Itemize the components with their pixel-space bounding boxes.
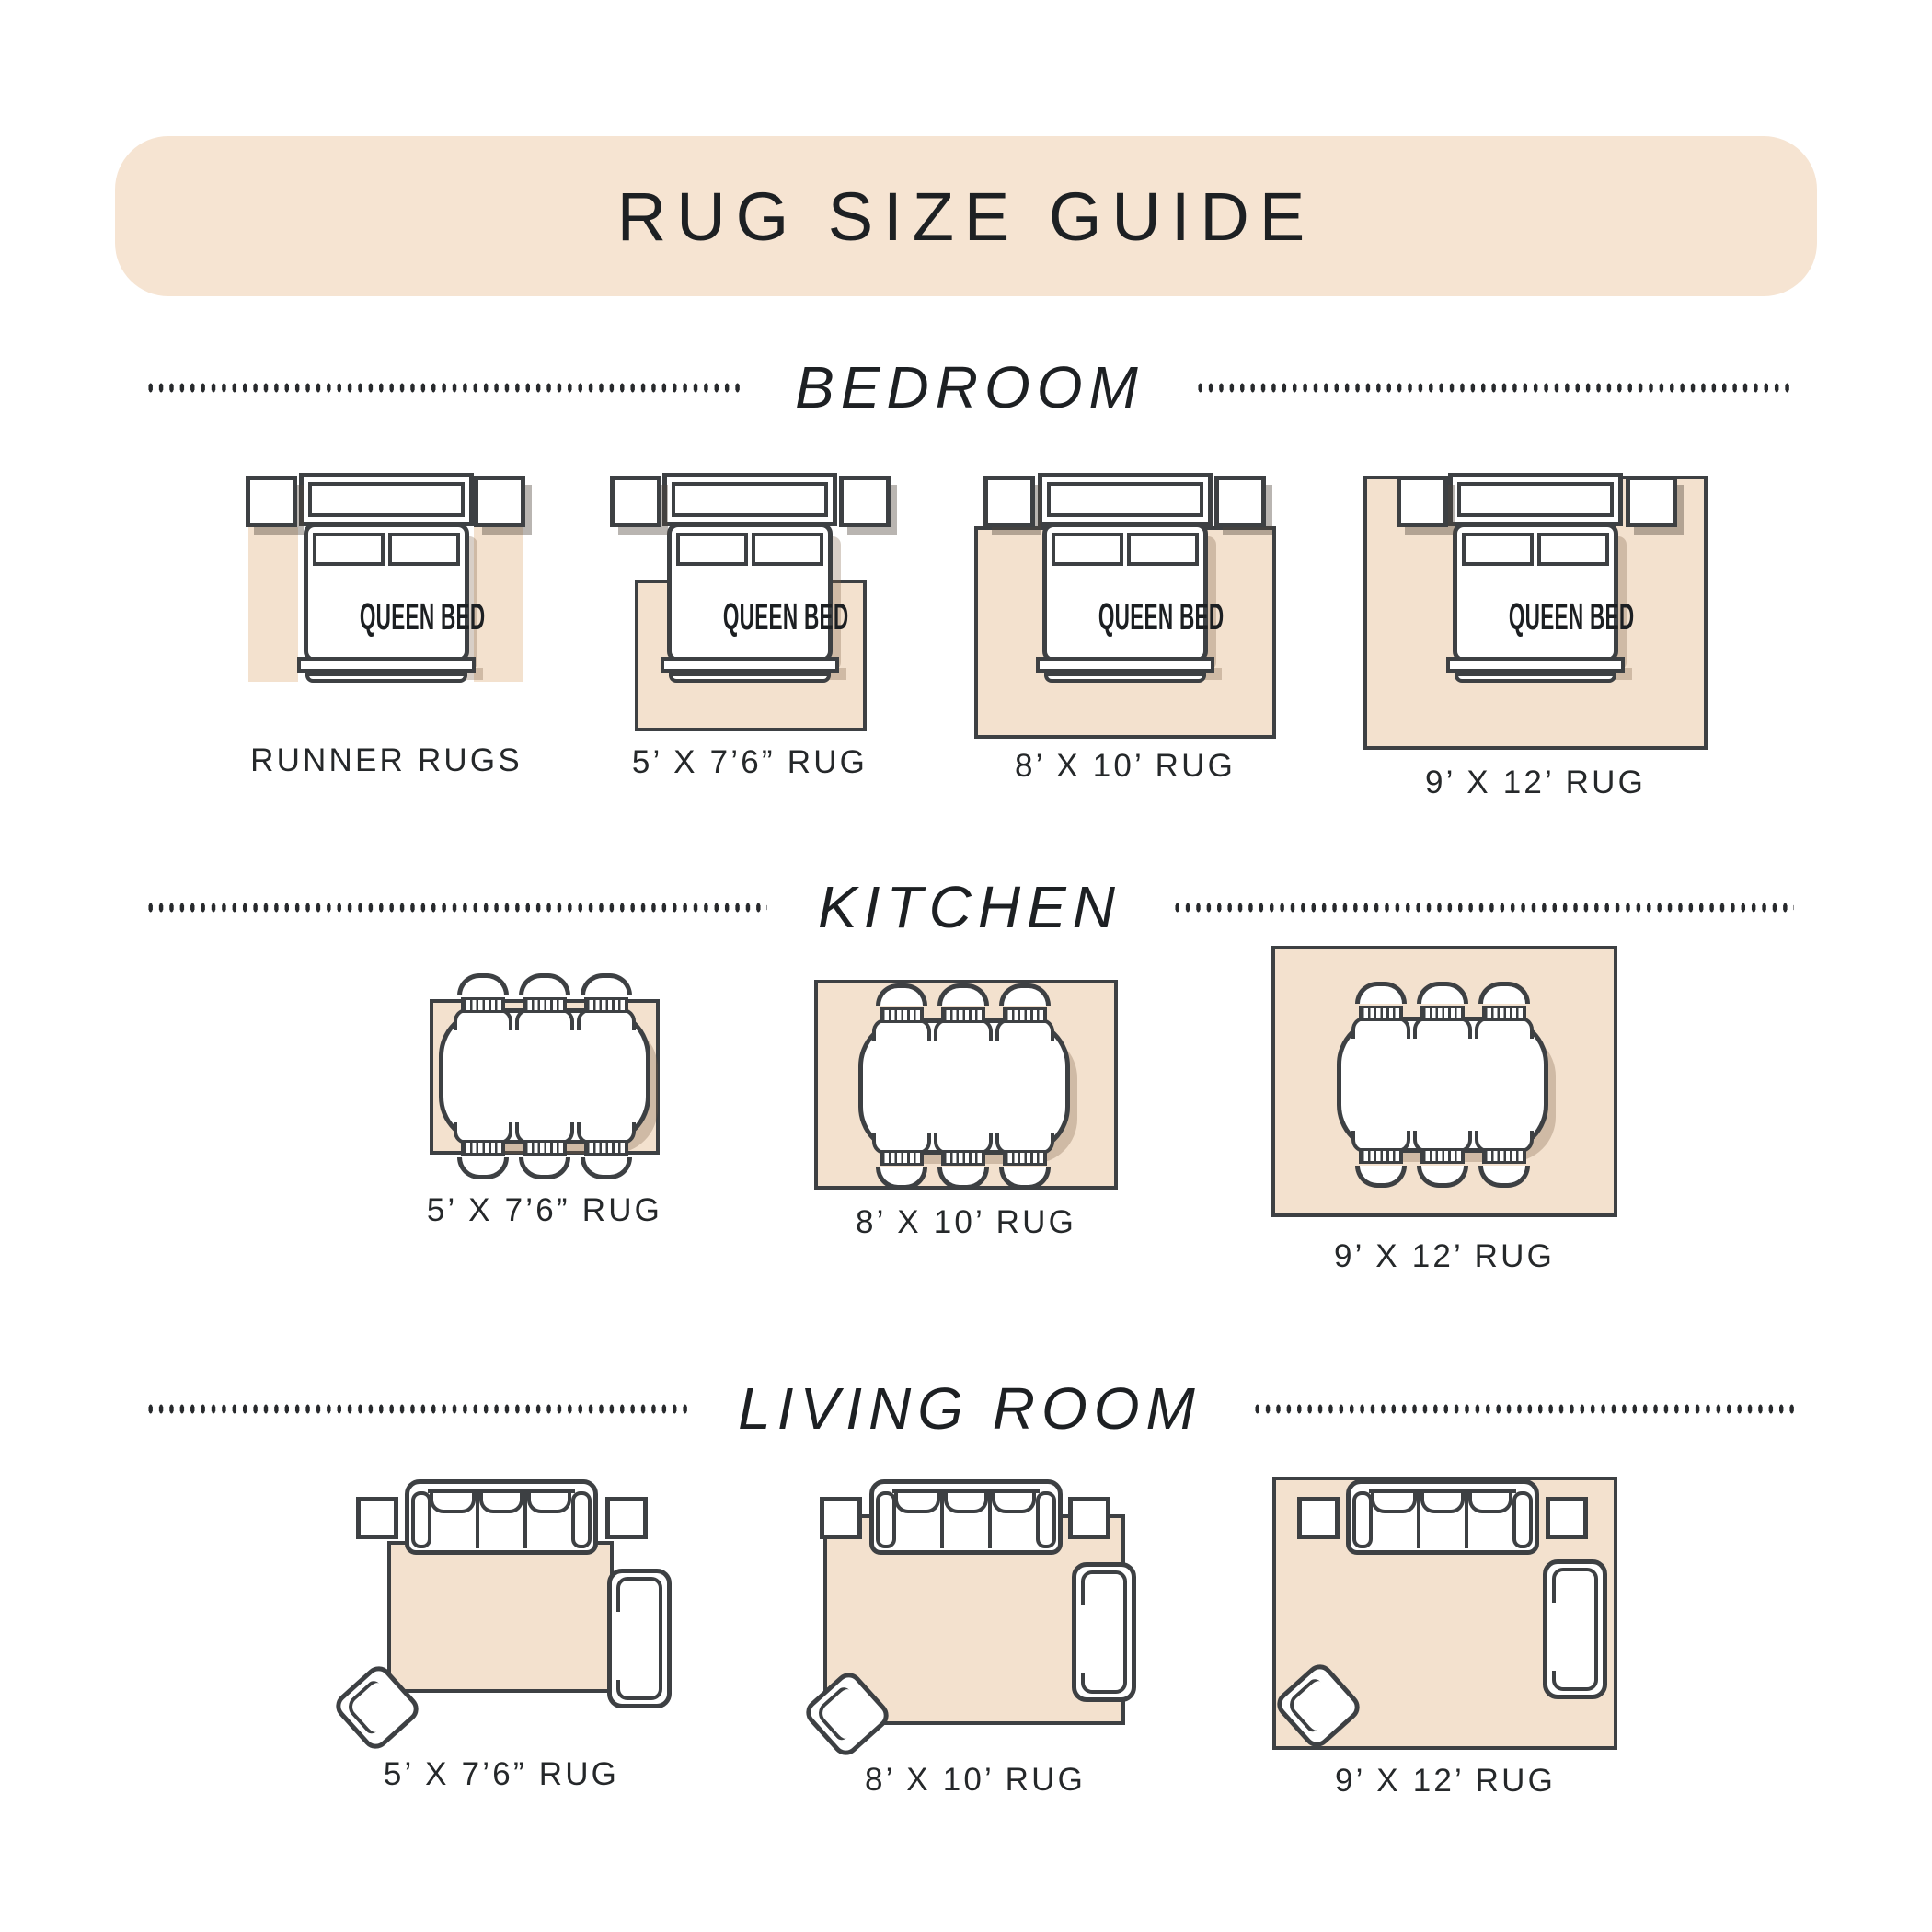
diagram-bedroom-runner-rugs: QUEEN BED RUNNER RUGS: [202, 460, 570, 828]
bed-headboard-inner: [308, 482, 465, 517]
chair-back: [457, 1157, 509, 1179]
chair-seat: [880, 1150, 924, 1166]
dotted-divider: [1252, 1404, 1794, 1414]
sofa: [1346, 1479, 1539, 1555]
sofa: [869, 1479, 1063, 1555]
chair: [454, 1122, 512, 1179]
chair-seat: [941, 1150, 985, 1166]
chair-back: [1478, 1166, 1530, 1188]
sofa-back-cushion: [1371, 1489, 1417, 1513]
chair-back: [937, 1167, 989, 1190]
chair-seat: [941, 1007, 985, 1023]
armchair-cushion: [616, 1577, 662, 1700]
pillow: [1052, 533, 1123, 566]
chair-back: [1417, 1166, 1468, 1188]
side-table: [1068, 1497, 1110, 1539]
section-heading: BEDROOM: [795, 353, 1144, 421]
sofa-cushion-divider: [523, 1489, 527, 1548]
bed-headboard-inner: [672, 482, 828, 517]
chair-seat: [1482, 1148, 1526, 1164]
side-table: [1546, 1497, 1588, 1539]
pillow: [1537, 533, 1609, 566]
runner-rug: [248, 527, 298, 682]
diagram-living-room-9x12: 9’ X 12’ RUG: [1238, 1467, 1652, 1835]
bed-footboard: [305, 673, 467, 683]
accent-chair-back: [1284, 1676, 1343, 1735]
nightstand: [1397, 476, 1448, 527]
rug-size-guide-infographic: RUG SIZE GUIDE BEDROOM QUEEN BED RUNNER …: [0, 0, 1932, 1932]
bed-label: QUEEN BED: [672, 595, 828, 638]
side-table: [1297, 1497, 1340, 1539]
dotted-divider: [1195, 383, 1794, 393]
chair: [934, 983, 993, 1041]
chair: [515, 1122, 574, 1179]
bed-headboard-inner: [1457, 482, 1614, 517]
pillow: [1127, 533, 1199, 566]
dotted-divider: [1172, 903, 1794, 913]
dotted-divider: [145, 1404, 687, 1414]
armchair: [607, 1569, 672, 1708]
accent-chair-back: [343, 1678, 402, 1737]
dotted-divider: [145, 903, 767, 913]
sofa-cushion-divider: [988, 1489, 992, 1548]
nightstand: [1626, 476, 1677, 527]
bed-headboard-inner: [1047, 482, 1203, 517]
armchair-cushion: [1552, 1568, 1598, 1691]
armchair-opening: [1551, 1603, 1558, 1671]
chair-back: [1355, 1166, 1407, 1188]
diagram-label: 5’ X 7’6” RUG: [361, 1192, 729, 1229]
sofa-cushion-divider: [1417, 1489, 1420, 1548]
diagram-label: 8’ X 10’ RUG: [768, 1762, 1182, 1799]
chair: [1413, 982, 1472, 1039]
pillow: [313, 533, 385, 566]
sofa-arm: [876, 1491, 896, 1548]
chair-back: [876, 983, 927, 1006]
diagram-label: 5’ X 7’6” RUG: [566, 744, 934, 781]
chair-seat: [584, 1140, 628, 1156]
page-title: RUG SIZE GUIDE: [617, 178, 1315, 256]
chair-back: [1478, 982, 1530, 1004]
chair: [995, 1133, 1054, 1190]
pillow: [752, 533, 823, 566]
sofa-back-cushion: [894, 1489, 940, 1513]
title-banner: RUG SIZE GUIDE: [115, 136, 1817, 296]
bed-headboard: [299, 473, 474, 526]
bed-label: QUEEN BED: [1047, 595, 1203, 638]
diagram-living-room-5x76: 5’ X 7’6” RUG: [294, 1467, 708, 1835]
sofa-arm: [571, 1491, 592, 1548]
queen-bed: QUEEN BED: [304, 523, 469, 662]
nightstand: [474, 476, 525, 527]
chair-back: [1355, 982, 1407, 1004]
sofa-back-cushion: [479, 1489, 523, 1513]
chair-seat: [1359, 1006, 1403, 1021]
bed-footboard: [1446, 657, 1625, 673]
chair: [872, 1133, 931, 1190]
nightstand: [610, 476, 661, 527]
chair: [515, 973, 574, 1030]
diagram-label: 9’ X 12’ RUG: [1260, 1238, 1628, 1275]
sofa-arm: [1512, 1491, 1533, 1548]
pillow: [676, 533, 748, 566]
diagram-label: 5’ X 7’6” RUG: [294, 1756, 708, 1793]
chair: [577, 1122, 636, 1179]
pillow: [388, 533, 460, 566]
diagram-label: 9’ X 12’ RUG: [1238, 1763, 1652, 1800]
chair-back: [999, 1167, 1051, 1190]
bed-footboard: [1455, 673, 1616, 683]
nightstand: [983, 476, 1035, 527]
section-header-kitchen: KITCHEN: [145, 877, 1794, 937]
sofa-cushion-divider: [476, 1489, 479, 1548]
section-header-living-room: LIVING ROOM: [145, 1378, 1794, 1439]
chair-seat: [1420, 1006, 1465, 1021]
diagram-kitchen-8x10: 8’ X 10’ RUG: [782, 938, 1150, 1306]
armchair-opening: [1080, 1605, 1087, 1673]
diagram-label: 8’ X 10’ RUG: [782, 1204, 1150, 1241]
sofa-arm: [1352, 1491, 1373, 1548]
diagram-bedroom-9x12: QUEEN BED 9’ X 12’ RUG: [1351, 460, 1719, 828]
bed-headboard: [1448, 473, 1623, 526]
chair-seat: [523, 997, 567, 1013]
armchair-cushion: [1081, 1570, 1127, 1694]
diagram-label: 9’ X 12’ RUG: [1351, 765, 1719, 801]
chair: [1351, 1131, 1410, 1188]
bed-headboard: [662, 473, 837, 526]
chair-back: [581, 1157, 632, 1179]
chair-seat: [1482, 1006, 1526, 1021]
diagram-label: RUNNER RUGS: [202, 742, 570, 779]
section-heading: KITCHEN: [818, 873, 1121, 941]
sofa-cushion-divider: [940, 1489, 944, 1548]
sofa-cushion-divider: [1465, 1489, 1468, 1548]
accent-chair-back: [813, 1685, 872, 1743]
side-table: [605, 1497, 648, 1539]
chair: [1413, 1131, 1472, 1188]
chair-seat: [1003, 1150, 1047, 1166]
armchair: [1072, 1562, 1136, 1702]
chair-seat: [1003, 1007, 1047, 1023]
chair-seat: [1359, 1148, 1403, 1164]
armchair: [1543, 1559, 1607, 1699]
sofa-back-cushion: [992, 1489, 1036, 1513]
chair: [1475, 982, 1534, 1039]
section-header-bedroom: BEDROOM: [145, 357, 1794, 418]
diagram-kitchen-5x76: 5’ X 7’6” RUG: [361, 938, 729, 1306]
chair-back: [581, 973, 632, 995]
nightstand: [246, 476, 297, 527]
dotted-divider: [145, 383, 744, 393]
sofa-back-cushion: [1468, 1489, 1512, 1513]
chair: [995, 983, 1054, 1041]
chair-back: [999, 983, 1051, 1006]
chair: [872, 983, 931, 1041]
sofa-back-cushion: [527, 1489, 571, 1513]
chair-back: [1417, 982, 1468, 1004]
sofa-back-cushion: [1420, 1489, 1465, 1513]
sofa-arm: [411, 1491, 431, 1548]
chair-seat: [461, 1140, 505, 1156]
sofa-back-cushion: [430, 1489, 476, 1513]
diagram-bedroom-8x10: QUEEN BED 8’ X 10’ RUG: [941, 460, 1309, 828]
pillow: [1462, 533, 1534, 566]
queen-bed: QUEEN BED: [667, 523, 833, 662]
bed-footboard: [661, 657, 839, 673]
chair-seat: [523, 1140, 567, 1156]
side-table: [820, 1497, 862, 1539]
chair-back: [519, 973, 570, 995]
queen-bed: QUEEN BED: [1042, 523, 1208, 662]
chair-seat: [461, 997, 505, 1013]
diagram-living-room-8x10: 8’ X 10’ RUG: [768, 1467, 1182, 1835]
bed-footboard: [1036, 657, 1214, 673]
chair: [1351, 982, 1410, 1039]
sofa-arm: [1036, 1491, 1056, 1548]
section-heading: LIVING ROOM: [738, 1374, 1202, 1443]
side-table: [356, 1497, 398, 1539]
armchair-opening: [615, 1612, 623, 1680]
chair-back: [937, 983, 989, 1006]
chair-back: [519, 1157, 570, 1179]
bed-label: QUEEN BED: [308, 595, 465, 638]
diagram-label: 8’ X 10’ RUG: [941, 748, 1309, 785]
chair: [454, 973, 512, 1030]
bed-footboard: [669, 673, 831, 683]
bed-label: QUEEN BED: [1457, 595, 1614, 638]
sofa-back-cushion: [944, 1489, 988, 1513]
queen-bed: QUEEN BED: [1453, 523, 1618, 662]
chair-back: [876, 1167, 927, 1190]
diagram-kitchen-9x12: 9’ X 12’ RUG: [1260, 938, 1628, 1306]
rug: [387, 1541, 614, 1693]
nightstand: [1214, 476, 1266, 527]
bed-footboard: [297, 657, 476, 673]
chair: [1475, 1131, 1534, 1188]
nightstand: [839, 476, 891, 527]
chair-seat: [1420, 1148, 1465, 1164]
sofa: [405, 1479, 598, 1555]
chair-seat: [880, 1007, 924, 1023]
chair-seat: [584, 997, 628, 1013]
chair: [577, 973, 636, 1030]
chair-back: [457, 973, 509, 995]
diagram-bedroom-5x76: QUEEN BED 5’ X 7’6” RUG: [566, 460, 934, 828]
chair: [934, 1133, 993, 1190]
bed-footboard: [1044, 673, 1206, 683]
bed-headboard: [1038, 473, 1213, 526]
